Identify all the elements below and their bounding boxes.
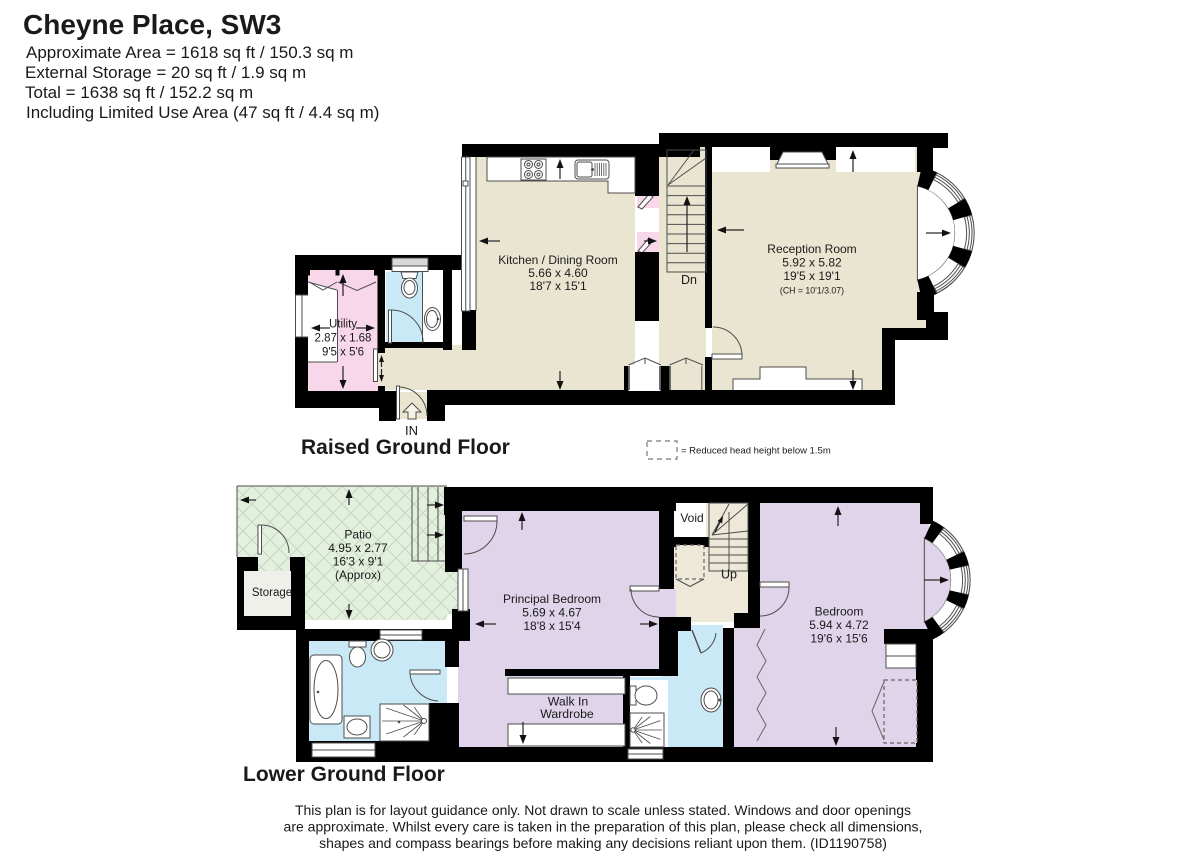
svg-text:2.87 x 1.68: 2.87 x 1.68 xyxy=(315,333,372,345)
svg-text:External Storage = 20 sq ft /: External Storage = 20 sq ft / 1.9 sq m xyxy=(25,63,306,82)
svg-text:Bedroom: Bedroom xyxy=(815,605,864,619)
svg-text:Including Limited Use Area (47: Including Limited Use Area (47 sq ft / 4… xyxy=(26,103,379,122)
svg-text:5.92 x 5.82: 5.92 x 5.82 xyxy=(782,256,842,270)
svg-text:are approximate. Whilst every: are approximate. Whilst every care is ta… xyxy=(284,819,923,835)
svg-text:18'8 x 15'4: 18'8 x 15'4 xyxy=(523,619,581,633)
svg-text:Utility: Utility xyxy=(329,319,357,331)
svg-text:shapes and compass bearings be: shapes and compass bearings before makin… xyxy=(319,835,887,851)
svg-text:Wardrobe: Wardrobe xyxy=(540,707,594,721)
svg-text:= Reduced head height below 1.: = Reduced head height below 1.5m xyxy=(681,446,831,457)
svg-text:19'5 x 19'1: 19'5 x 19'1 xyxy=(783,269,841,283)
svg-text:5.69 x 4.67: 5.69 x 4.67 xyxy=(522,606,582,620)
svg-text:18'7 x 15'1: 18'7 x 15'1 xyxy=(529,279,587,293)
svg-text:Void: Void xyxy=(680,511,703,525)
svg-text:Up: Up xyxy=(721,568,737,582)
svg-text:Total = 1638 sq ft / 152.2 sq: Total = 1638 sq ft / 152.2 sq m xyxy=(25,83,253,102)
svg-text:19'6 x 15'6: 19'6 x 15'6 xyxy=(810,632,868,646)
svg-text:Raised Ground Floor: Raised Ground Floor xyxy=(301,436,510,459)
svg-text:Storage: Storage xyxy=(252,587,292,599)
svg-text:9'5 x 5'6: 9'5 x 5'6 xyxy=(322,347,364,359)
svg-text:4.95 x 2.77: 4.95 x 2.77 xyxy=(328,541,388,555)
svg-text:Reception Room: Reception Room xyxy=(767,242,856,256)
svg-text:5.66 x 4.60: 5.66 x 4.60 xyxy=(528,266,588,280)
svg-text:Dn: Dn xyxy=(681,273,697,287)
svg-text:5.94 x 4.72: 5.94 x 4.72 xyxy=(809,618,869,632)
svg-text:Cheyne Place, SW3: Cheyne Place, SW3 xyxy=(23,9,281,40)
svg-text:(CH = 10'1/3.07): (CH = 10'1/3.07) xyxy=(780,286,844,296)
svg-text:16'3 x 9'1: 16'3 x 9'1 xyxy=(333,555,384,569)
svg-text:Principal Bedroom: Principal Bedroom xyxy=(503,592,601,606)
svg-text:This plan is for layout guidan: This plan is for layout guidance only. N… xyxy=(295,802,911,818)
svg-text:(Approx): (Approx) xyxy=(335,568,381,582)
svg-text:Kitchen / Dining Room: Kitchen / Dining Room xyxy=(498,253,617,267)
svg-text:Lower Ground Floor: Lower Ground Floor xyxy=(243,763,445,786)
svg-text:Approximate Area = 1618 sq ft: Approximate Area = 1618 sq ft / 150.3 sq… xyxy=(26,43,353,62)
svg-text:Patio: Patio xyxy=(344,528,372,542)
